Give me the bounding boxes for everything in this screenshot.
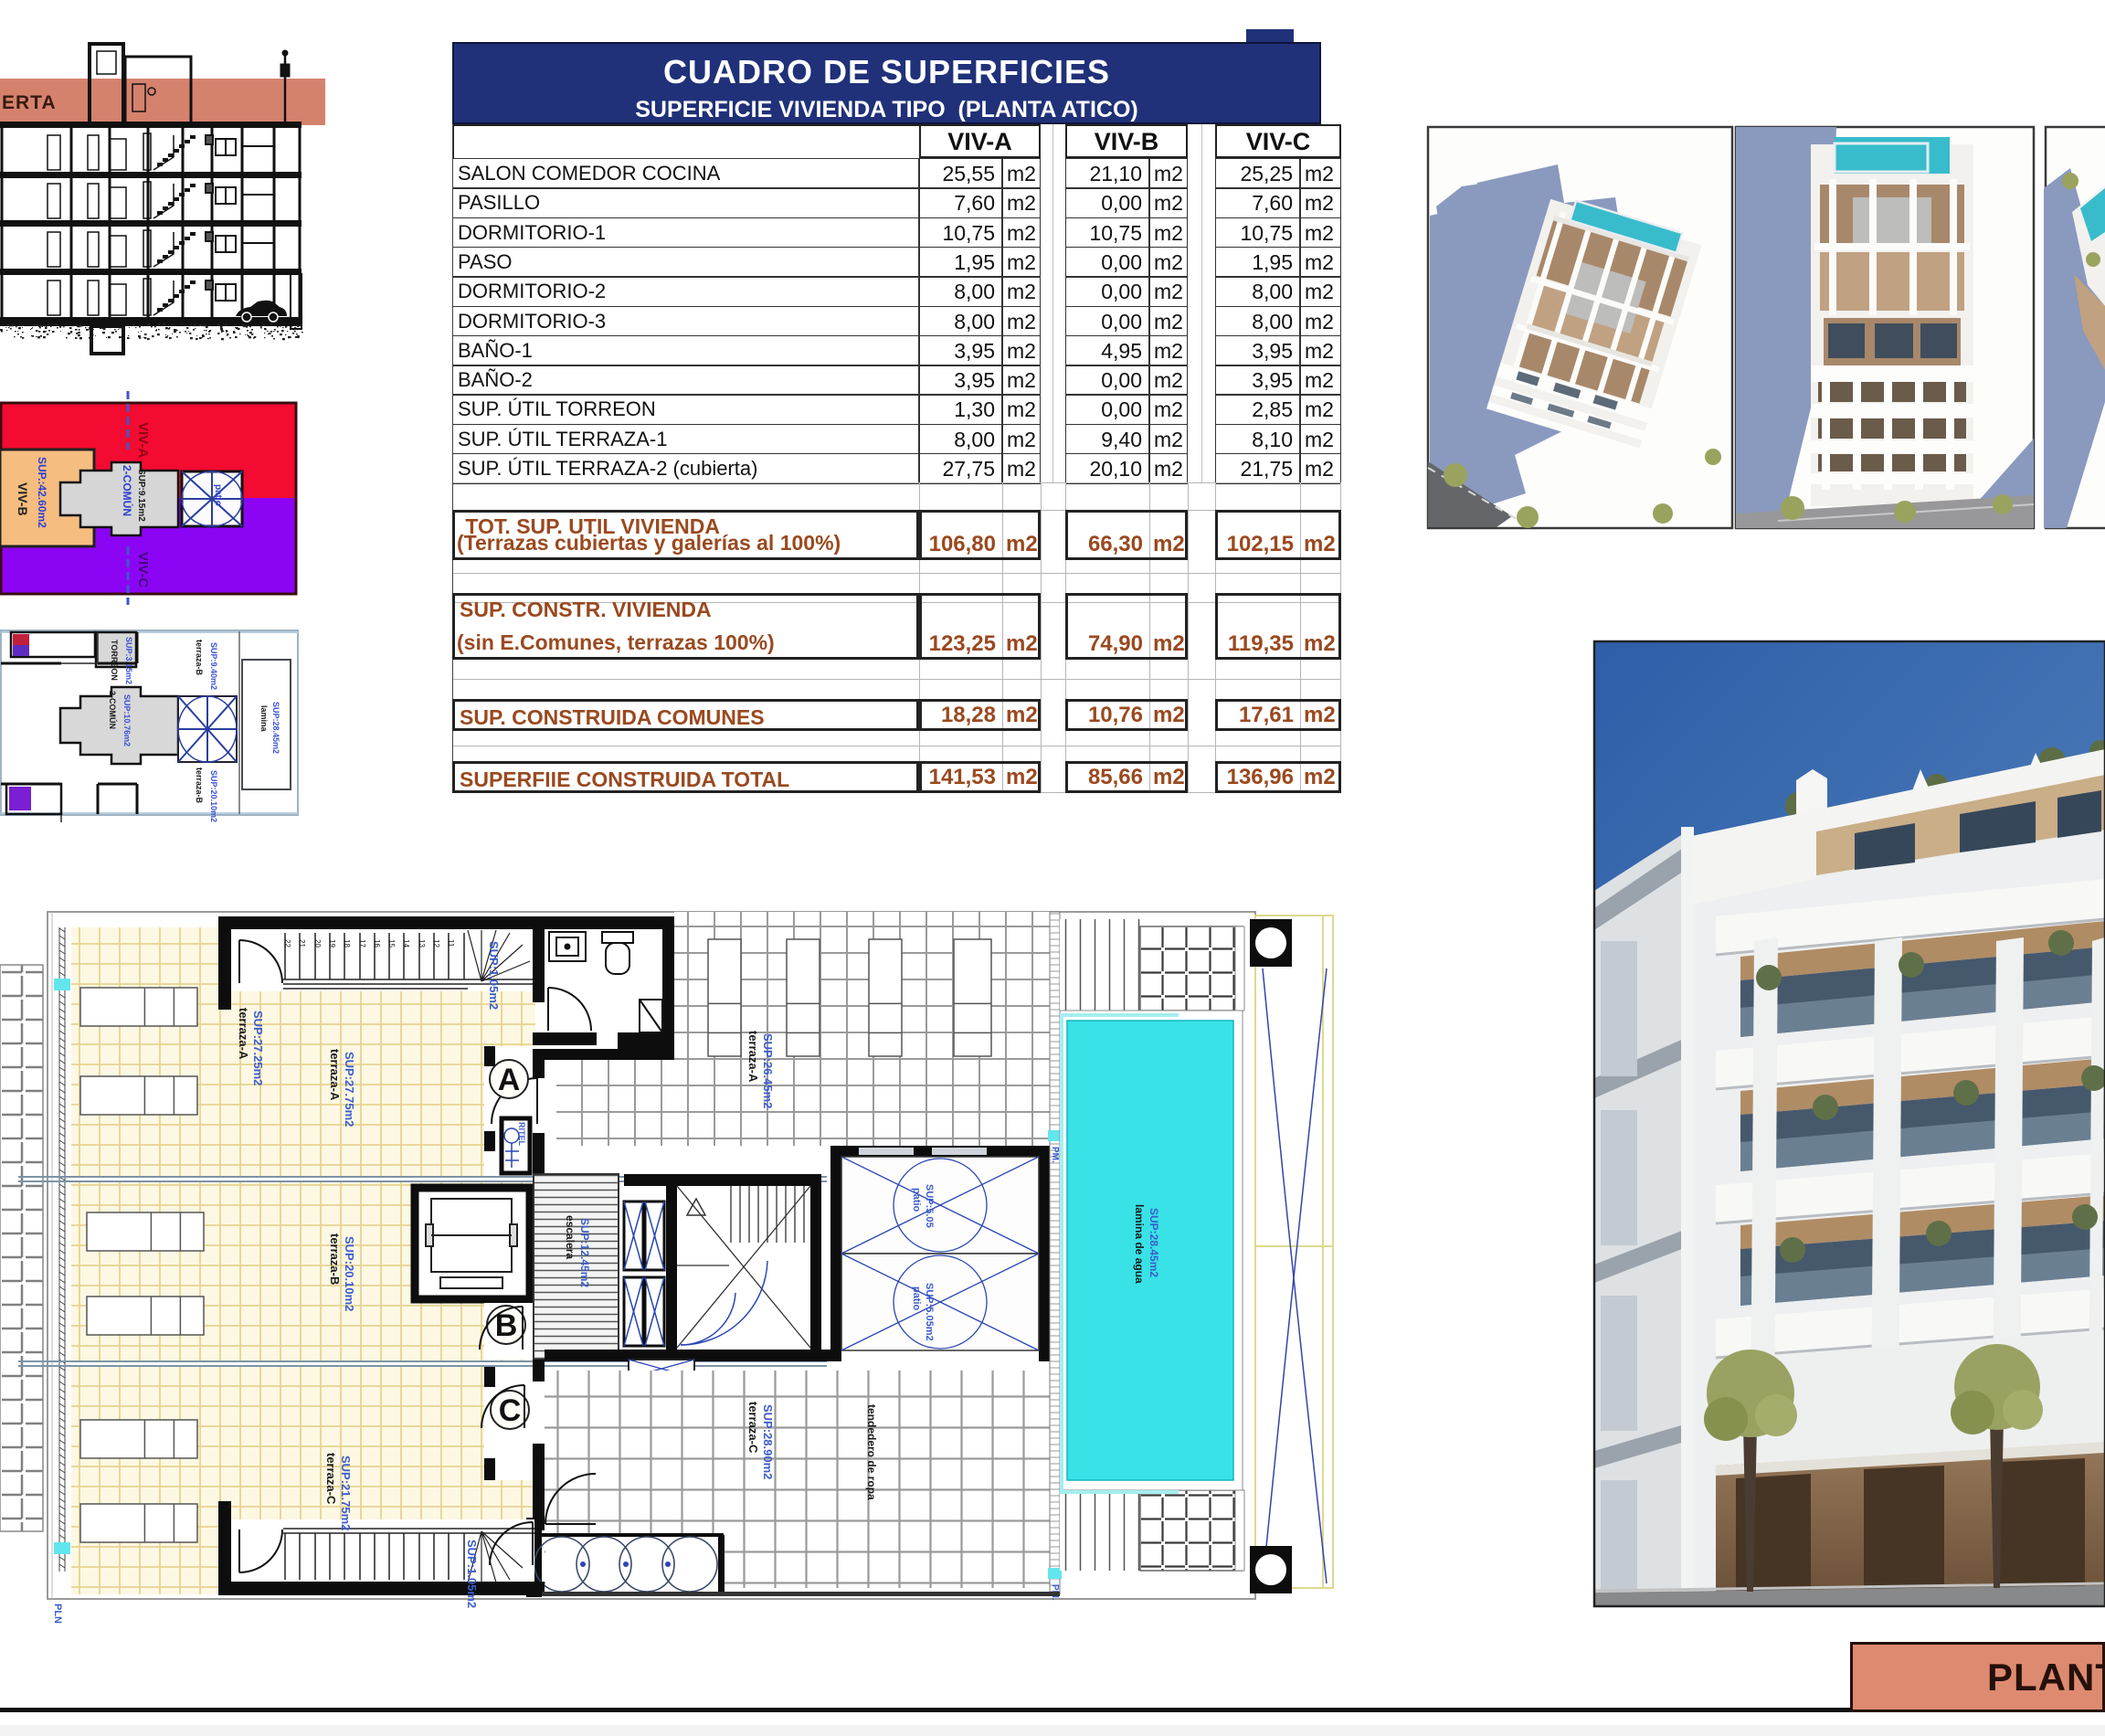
svg-text:VIV-C: VIV-C [135,552,151,587]
svg-text:terraza-B: terraza-B [195,640,204,676]
svg-text:SUP:1.05m2: SUP:1.05m2 [465,1540,479,1608]
svg-text:VIV-B: VIV-B [16,482,30,516]
svg-text:terraza-B: terraza-B [195,767,204,804]
svg-text:patio: patio [911,1286,922,1311]
svg-text:18: 18 [343,939,351,947]
svg-text:2-COMÚN: 2-COMÚN [121,465,134,516]
svg-text:terraza-A: terraza-A [328,1049,342,1101]
svg-text:tendedero de ropa: tendedero de ropa [865,1404,878,1500]
svg-text:19: 19 [328,939,336,947]
svg-text:SUP:27.25m2: SUP:27.25m2 [251,1011,265,1085]
svg-text:lamina: lamina [259,705,269,733]
svg-text:ERTA: ERTA [2,92,57,113]
svg-text:20: 20 [313,939,322,947]
svg-text:SUP:26.45m2: SUP:26.45m2 [761,1033,775,1108]
svg-text:TORREON: TORREON [110,640,119,681]
svg-text:SUP:28.45m2: SUP:28.45m2 [271,702,280,754]
svg-text:SUP.:42.60m2: SUP.:42.60m2 [36,457,48,528]
svg-text:patio: patio [911,1188,922,1212]
svg-text:VIV-A: VIV-A [135,422,151,458]
svg-text:SUP:5.05: SUP:5.05 [924,1184,935,1228]
svg-text:escalera: escalera [564,1215,576,1259]
svg-text:terraza-A: terraza-A [237,1008,250,1060]
svg-text:terraza-A: terraza-A [746,1031,760,1083]
svg-text:SUP:10.76m2: SUP:10.76m2 [122,694,132,746]
svg-text:lamina de agua: lamina de agua [1133,1204,1146,1284]
svg-text:SUP:5.05m2: SUP:5.05m2 [924,1283,935,1341]
svg-text:A: A [498,1063,521,1097]
svg-text:SUP:12.45m2: SUP:12.45m2 [578,1218,591,1287]
svg-text:21: 21 [298,939,306,947]
svg-text:SUP:9.40m2: SUP:9.40m2 [209,642,218,690]
svg-text:SUP:27.75m2: SUP:27.75m2 [343,1052,356,1127]
svg-text:PM.: PM. [1050,1147,1060,1163]
svg-text:terraza-B: terraza-B [328,1233,342,1285]
svg-text:11: 11 [447,939,455,947]
svg-text:SUP:20.10m2: SUP:20.10m2 [209,770,218,822]
svg-text:SUP:20.10m2: SUP:20.10m2 [343,1236,356,1311]
svg-text:SUP:3.15m2: SUP:3.15m2 [124,637,133,684]
svg-text:RITEL: RITEL [517,1122,526,1147]
svg-text:PLN: PLN [52,1604,63,1624]
svg-text:patio: patio [213,484,223,506]
svg-text:terraza-C: terraza-C [746,1402,760,1454]
svg-text:SUP:28.45m2: SUP:28.45m2 [1148,1208,1160,1277]
svg-text:22: 22 [283,939,291,947]
svg-text:12: 12 [432,939,440,947]
svg-text:SUP:1.05m2: SUP:1.05m2 [487,941,501,1010]
svg-text:14: 14 [402,939,410,947]
svg-text:SUP:28.90m2: SUP:28.90m2 [761,1404,775,1479]
svg-text:2-COMÚN: 2-COMÚN [108,691,118,729]
svg-text:15: 15 [387,939,396,947]
svg-text:16: 16 [373,939,381,947]
svg-text:13: 13 [418,939,426,947]
svg-text:17: 17 [358,939,366,947]
svg-text:terraza-C: terraza-C [324,1453,338,1505]
svg-text:SUP:9.15m2: SUP:9.15m2 [136,469,146,522]
svg-text:SUP:21.75m2: SUP:21.75m2 [339,1455,353,1530]
svg-text:C: C [499,1393,522,1428]
